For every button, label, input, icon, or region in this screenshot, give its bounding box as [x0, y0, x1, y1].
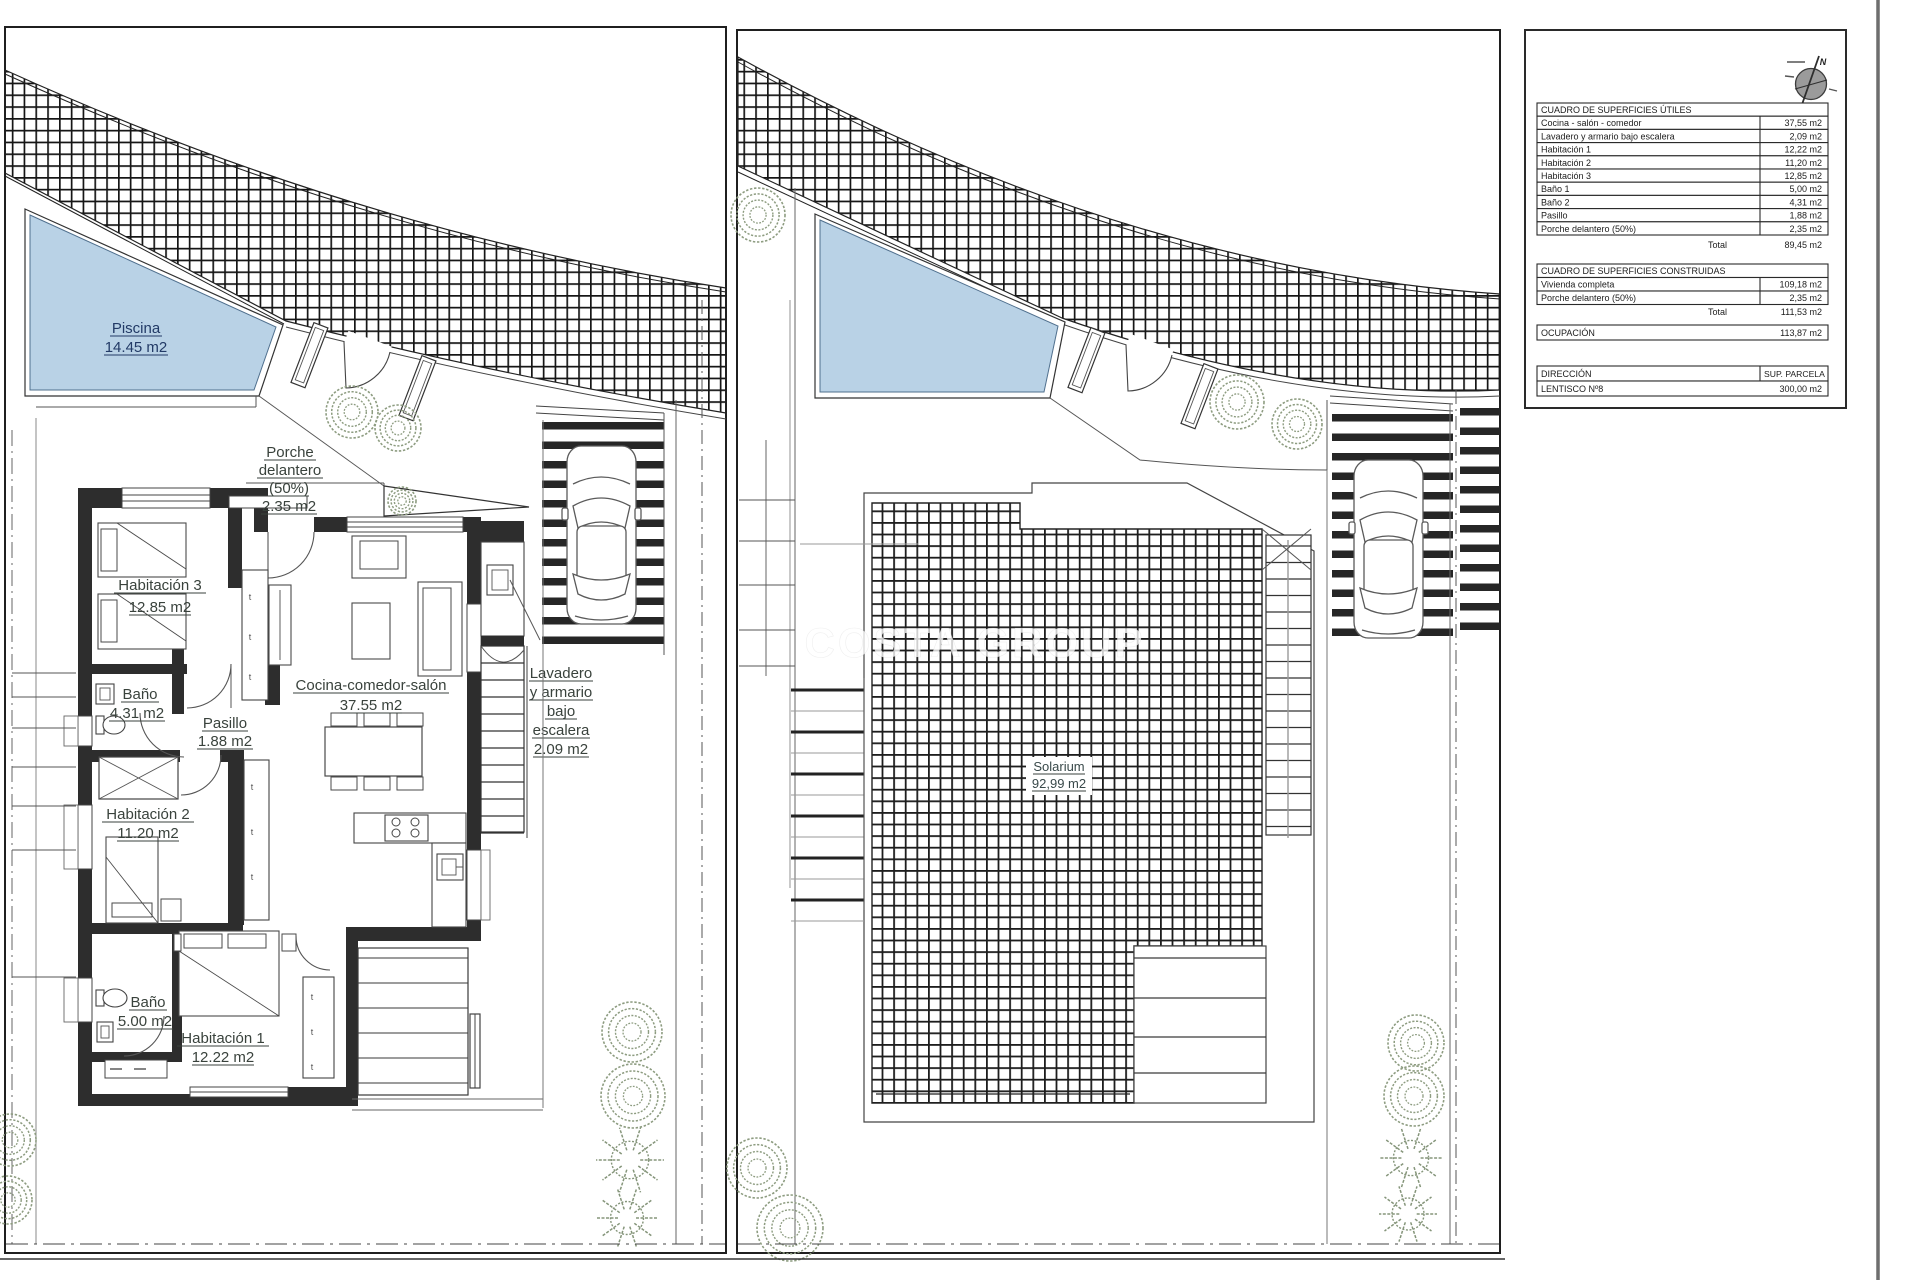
- svg-text:Porche delantero (50%): Porche delantero (50%): [1541, 293, 1636, 303]
- svg-text:37.55 m2: 37.55 m2: [340, 697, 403, 714]
- svg-text:Habitación 2: Habitación 2: [106, 806, 189, 823]
- svg-text:Habitación 3: Habitación 3: [118, 577, 201, 594]
- svg-text:CUADRO DE SUPERFICIES CONSTRUI: CUADRO DE SUPERFICIES CONSTRUIDAS: [1541, 266, 1726, 276]
- svg-text:Baño 2: Baño 2: [1541, 197, 1570, 207]
- svg-text:5,00 m2: 5,00 m2: [1789, 184, 1822, 194]
- svg-text:Pasillo: Pasillo: [1541, 211, 1568, 221]
- svg-text:DIRECCIÓN: DIRECCIÓN: [1541, 369, 1592, 379]
- svg-text:Baño 1: Baño 1: [1541, 184, 1570, 194]
- svg-text:LENTISCO Nº8: LENTISCO Nº8: [1541, 384, 1603, 394]
- svg-text:2,09 m2: 2,09 m2: [1789, 131, 1822, 141]
- svg-text:12.22 m2: 12.22 m2: [192, 1049, 255, 1066]
- svg-text:11.20 m2: 11.20 m2: [117, 825, 178, 842]
- svg-text:Cocina-comedor-salón: Cocina-comedor-salón: [296, 677, 447, 694]
- svg-text:Pasillo: Pasillo: [203, 715, 247, 732]
- svg-text:CUADRO DE SUPERFICIES ÚTILES: CUADRO DE SUPERFICIES ÚTILES: [1541, 105, 1692, 115]
- svg-text:y armario: y armario: [530, 684, 593, 701]
- svg-text:Baño: Baño: [122, 686, 157, 703]
- svg-text:SUP. PARCELA: SUP. PARCELA: [1764, 369, 1825, 379]
- svg-text:COSTA GROUP: COSTA GROUP: [804, 619, 1145, 666]
- svg-text:12,22 m2: 12,22 m2: [1784, 145, 1822, 155]
- svg-text:Lavadero: Lavadero: [530, 665, 593, 682]
- svg-text:Solarium: Solarium: [1033, 759, 1084, 774]
- svg-text:92,99 m2: 92,99 m2: [1032, 776, 1086, 791]
- svg-text:4,31 m2: 4,31 m2: [1789, 197, 1822, 207]
- svg-text:4.31 m2: 4.31 m2: [110, 705, 164, 722]
- svg-text:1,88 m2: 1,88 m2: [1789, 211, 1822, 221]
- svg-text:Piscina: Piscina: [112, 320, 161, 337]
- svg-text:Baño: Baño: [130, 994, 165, 1011]
- svg-text:Lavadero y armario bajo escale: Lavadero y armario bajo escalera: [1541, 131, 1675, 141]
- svg-text:(50%): (50%): [269, 480, 309, 497]
- svg-text:Vivienda completa: Vivienda completa: [1541, 280, 1614, 290]
- svg-text:2,35 m2: 2,35 m2: [1789, 224, 1822, 234]
- svg-text:Habitación 3: Habitación 3: [1541, 171, 1591, 181]
- svg-text:Porche: Porche: [266, 444, 314, 461]
- svg-text:OCUPACIÓN: OCUPACIÓN: [1541, 328, 1595, 338]
- svg-text:Porche delantero (50%): Porche delantero (50%): [1541, 224, 1636, 234]
- svg-text:12.85 m2: 12.85 m2: [129, 599, 192, 616]
- svg-text:12,85 m2: 12,85 m2: [1784, 171, 1822, 181]
- svg-text:Habitación 2: Habitación 2: [1541, 158, 1591, 168]
- svg-text:111,53 m2: 111,53 m2: [1781, 307, 1822, 317]
- svg-text:2.09 m2: 2.09 m2: [534, 741, 588, 758]
- svg-text:37,55 m2: 37,55 m2: [1784, 118, 1822, 128]
- svg-text:11,20 m2: 11,20 m2: [1785, 158, 1822, 168]
- svg-text:300,00 m2: 300,00 m2: [1779, 384, 1822, 394]
- svg-text:1.88 m2: 1.88 m2: [198, 733, 252, 750]
- svg-text:Total: Total: [1708, 307, 1727, 317]
- svg-text:5.00 m2: 5.00 m2: [118, 1013, 172, 1030]
- svg-text:bajo: bajo: [547, 703, 575, 720]
- svg-text:Total: Total: [1708, 240, 1727, 250]
- svg-text:14.45 m2: 14.45 m2: [105, 339, 168, 356]
- svg-text:Habitación 1: Habitación 1: [1541, 145, 1591, 155]
- svg-text:2.35 m2: 2.35 m2: [262, 498, 316, 515]
- svg-text:109,18 m2: 109,18 m2: [1779, 280, 1822, 290]
- svg-text:Habitación 1: Habitación 1: [181, 1030, 264, 1047]
- svg-text:89,45 m2: 89,45 m2: [1784, 240, 1822, 250]
- svg-text:113,87 m2: 113,87 m2: [1780, 328, 1822, 338]
- svg-text:delantero: delantero: [259, 462, 322, 479]
- svg-text:escalera: escalera: [533, 722, 590, 739]
- svg-text:Cocina - salón - comedor: Cocina - salón - comedor: [1541, 118, 1642, 128]
- svg-text:2,35 m2: 2,35 m2: [1789, 293, 1822, 303]
- svg-text:N: N: [1820, 57, 1827, 67]
